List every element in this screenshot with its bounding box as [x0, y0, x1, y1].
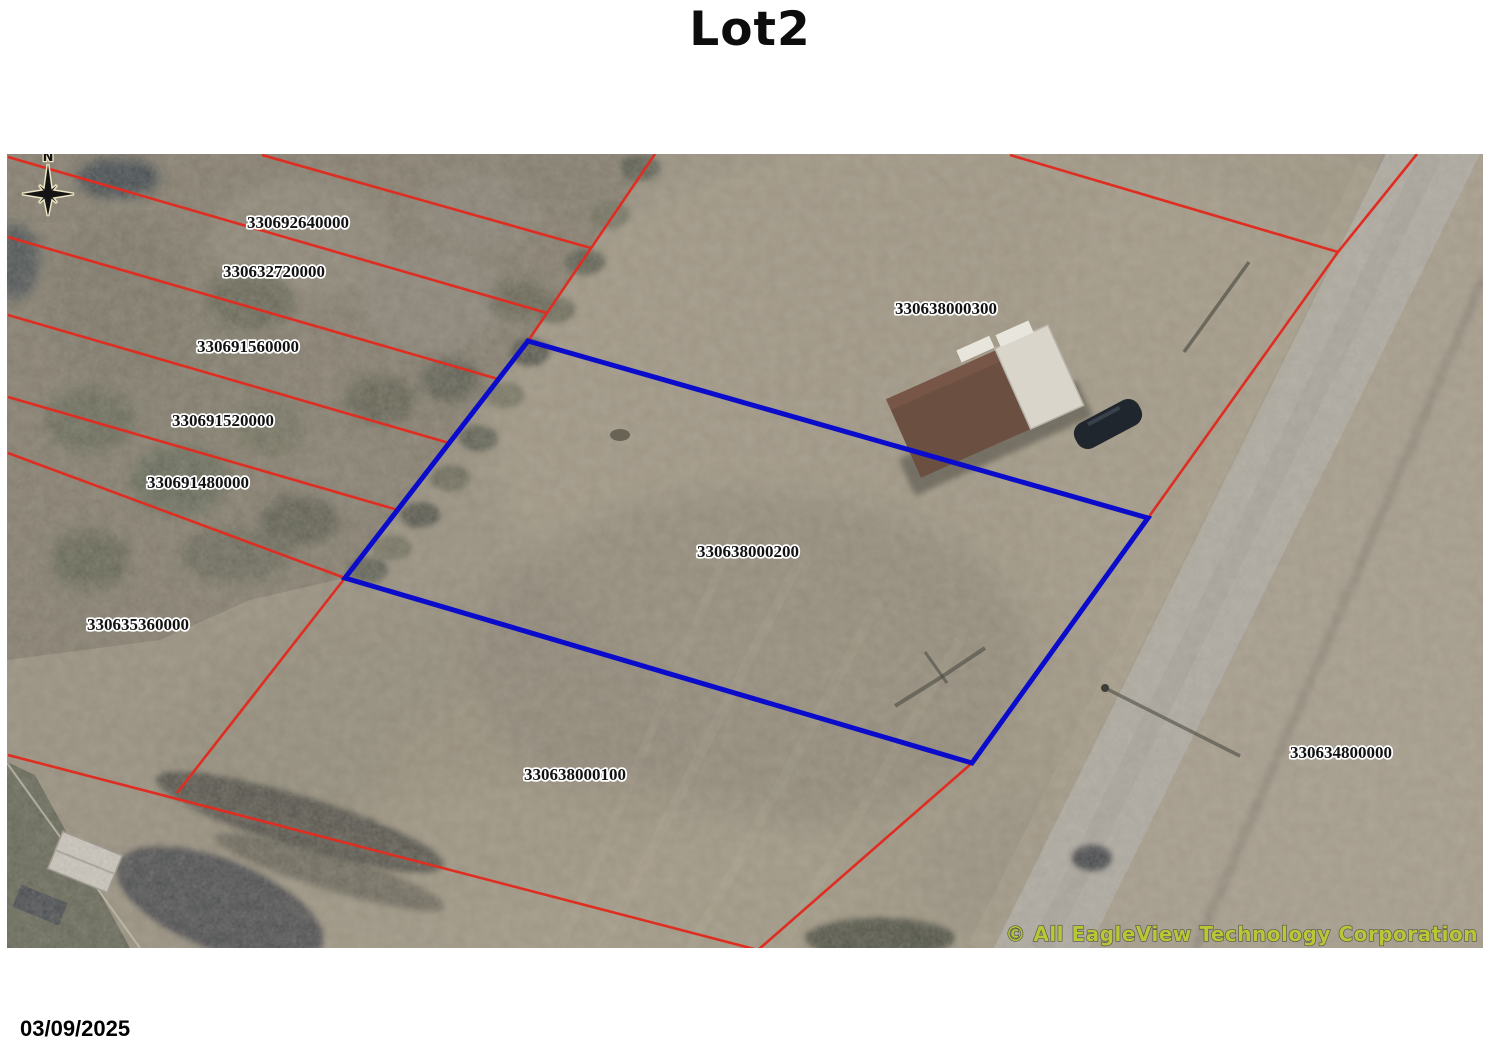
page-title: Lot2 — [0, 2, 1500, 57]
parcel-label: 330638000200 — [697, 542, 799, 561]
parcel-label: 330638000100 — [524, 765, 626, 784]
parcel-label: 330634800000 — [1290, 743, 1392, 762]
aerial-map: N 330692640000 330632720000 330691560000… — [7, 154, 1483, 948]
aerial-photo: N 330692640000 330632720000 330691560000… — [7, 154, 1483, 948]
parcel-label: 330632720000 — [223, 262, 325, 281]
parcel-label: 330692640000 — [247, 213, 349, 232]
parcel-label: 330638000300 — [895, 299, 997, 318]
parcel-label: 330691560000 — [197, 337, 299, 356]
parcel-label: 330635360000 — [87, 615, 189, 634]
north-label: N — [43, 154, 54, 165]
parcel-label: 330691480000 — [147, 473, 249, 492]
imagery-copyright: © All EagleView Technology Corporation — [1005, 922, 1478, 946]
parcel-label: 330691520000 — [172, 411, 274, 430]
report-date: 03/09/2025 — [20, 1016, 130, 1042]
